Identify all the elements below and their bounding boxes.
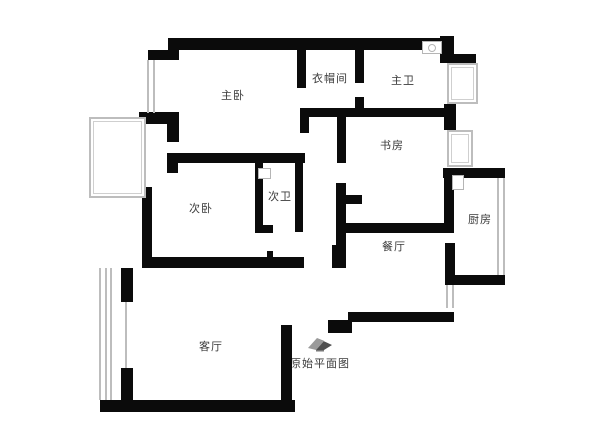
wall-segment [340, 223, 454, 233]
window-glazing-line [99, 268, 101, 400]
wall-segment [355, 50, 364, 83]
wall-segment [297, 50, 306, 88]
wall-segment [143, 257, 304, 268]
room-label-living-room: 客厅 [199, 338, 223, 354]
wall-segment [148, 50, 179, 60]
wall-segment [167, 153, 305, 163]
window [89, 117, 146, 198]
window [124, 302, 127, 368]
wall-segment [337, 195, 362, 204]
room-label-master-bedroom: 主卧 [221, 87, 245, 103]
kitchen-sink-icon [452, 175, 464, 190]
room-label-study: 书房 [380, 137, 404, 153]
second-bath-sink-icon [258, 168, 271, 179]
wall-segment [300, 108, 455, 117]
window-glazing-line [446, 285, 448, 308]
floor-plan-caption: 原始平面图 [285, 336, 355, 372]
window [447, 63, 478, 104]
wall-segment [142, 187, 152, 268]
window [446, 285, 454, 308]
floor-plan: 原始平面图 主卧衣帽间主卫书房次卧次卫餐厅厨房客厅 [0, 0, 600, 436]
window-glazing-line [105, 268, 107, 400]
window-glazing [451, 67, 474, 100]
window [447, 130, 473, 167]
wall-segment [348, 312, 454, 322]
room-label-second-bath: 次卫 [268, 188, 292, 204]
house-roof-icon [307, 336, 333, 352]
wall-segment [267, 251, 273, 257]
wall-segment [281, 325, 292, 408]
wall-segment [300, 108, 309, 133]
window-glazing [93, 121, 142, 194]
room-label-second-bedroom: 次卧 [189, 200, 213, 216]
wall-segment [167, 112, 179, 142]
window-glazing-line [110, 268, 112, 400]
window [99, 268, 112, 400]
room-label-kitchen: 厨房 [468, 211, 492, 227]
window-glazing-line [153, 60, 155, 113]
window-glazing-line [125, 302, 127, 368]
window-glazing-line [497, 178, 499, 275]
wall-segment [255, 225, 273, 233]
window-glazing-line [147, 60, 149, 113]
wall-segment [295, 163, 303, 232]
wall-segment [337, 117, 346, 163]
wall-segment [121, 368, 133, 402]
window-glazing-line [452, 285, 454, 308]
window-glazing [451, 134, 469, 163]
wall-segment [167, 153, 178, 173]
room-label-master-bath: 主卫 [391, 72, 415, 88]
room-label-dining-room: 餐厅 [382, 238, 406, 254]
window [497, 178, 505, 275]
wall-segment [328, 320, 352, 333]
window-glazing-line [503, 178, 505, 275]
wall-segment [448, 275, 505, 285]
wall-segment [168, 38, 444, 50]
wall-segment [121, 268, 133, 302]
room-label-closet: 衣帽间 [312, 70, 348, 86]
master-bath-sink-icon [422, 41, 442, 54]
window [147, 60, 155, 113]
caption-label: 原始平面图 [290, 358, 350, 370]
sink-basin-icon [428, 44, 436, 52]
